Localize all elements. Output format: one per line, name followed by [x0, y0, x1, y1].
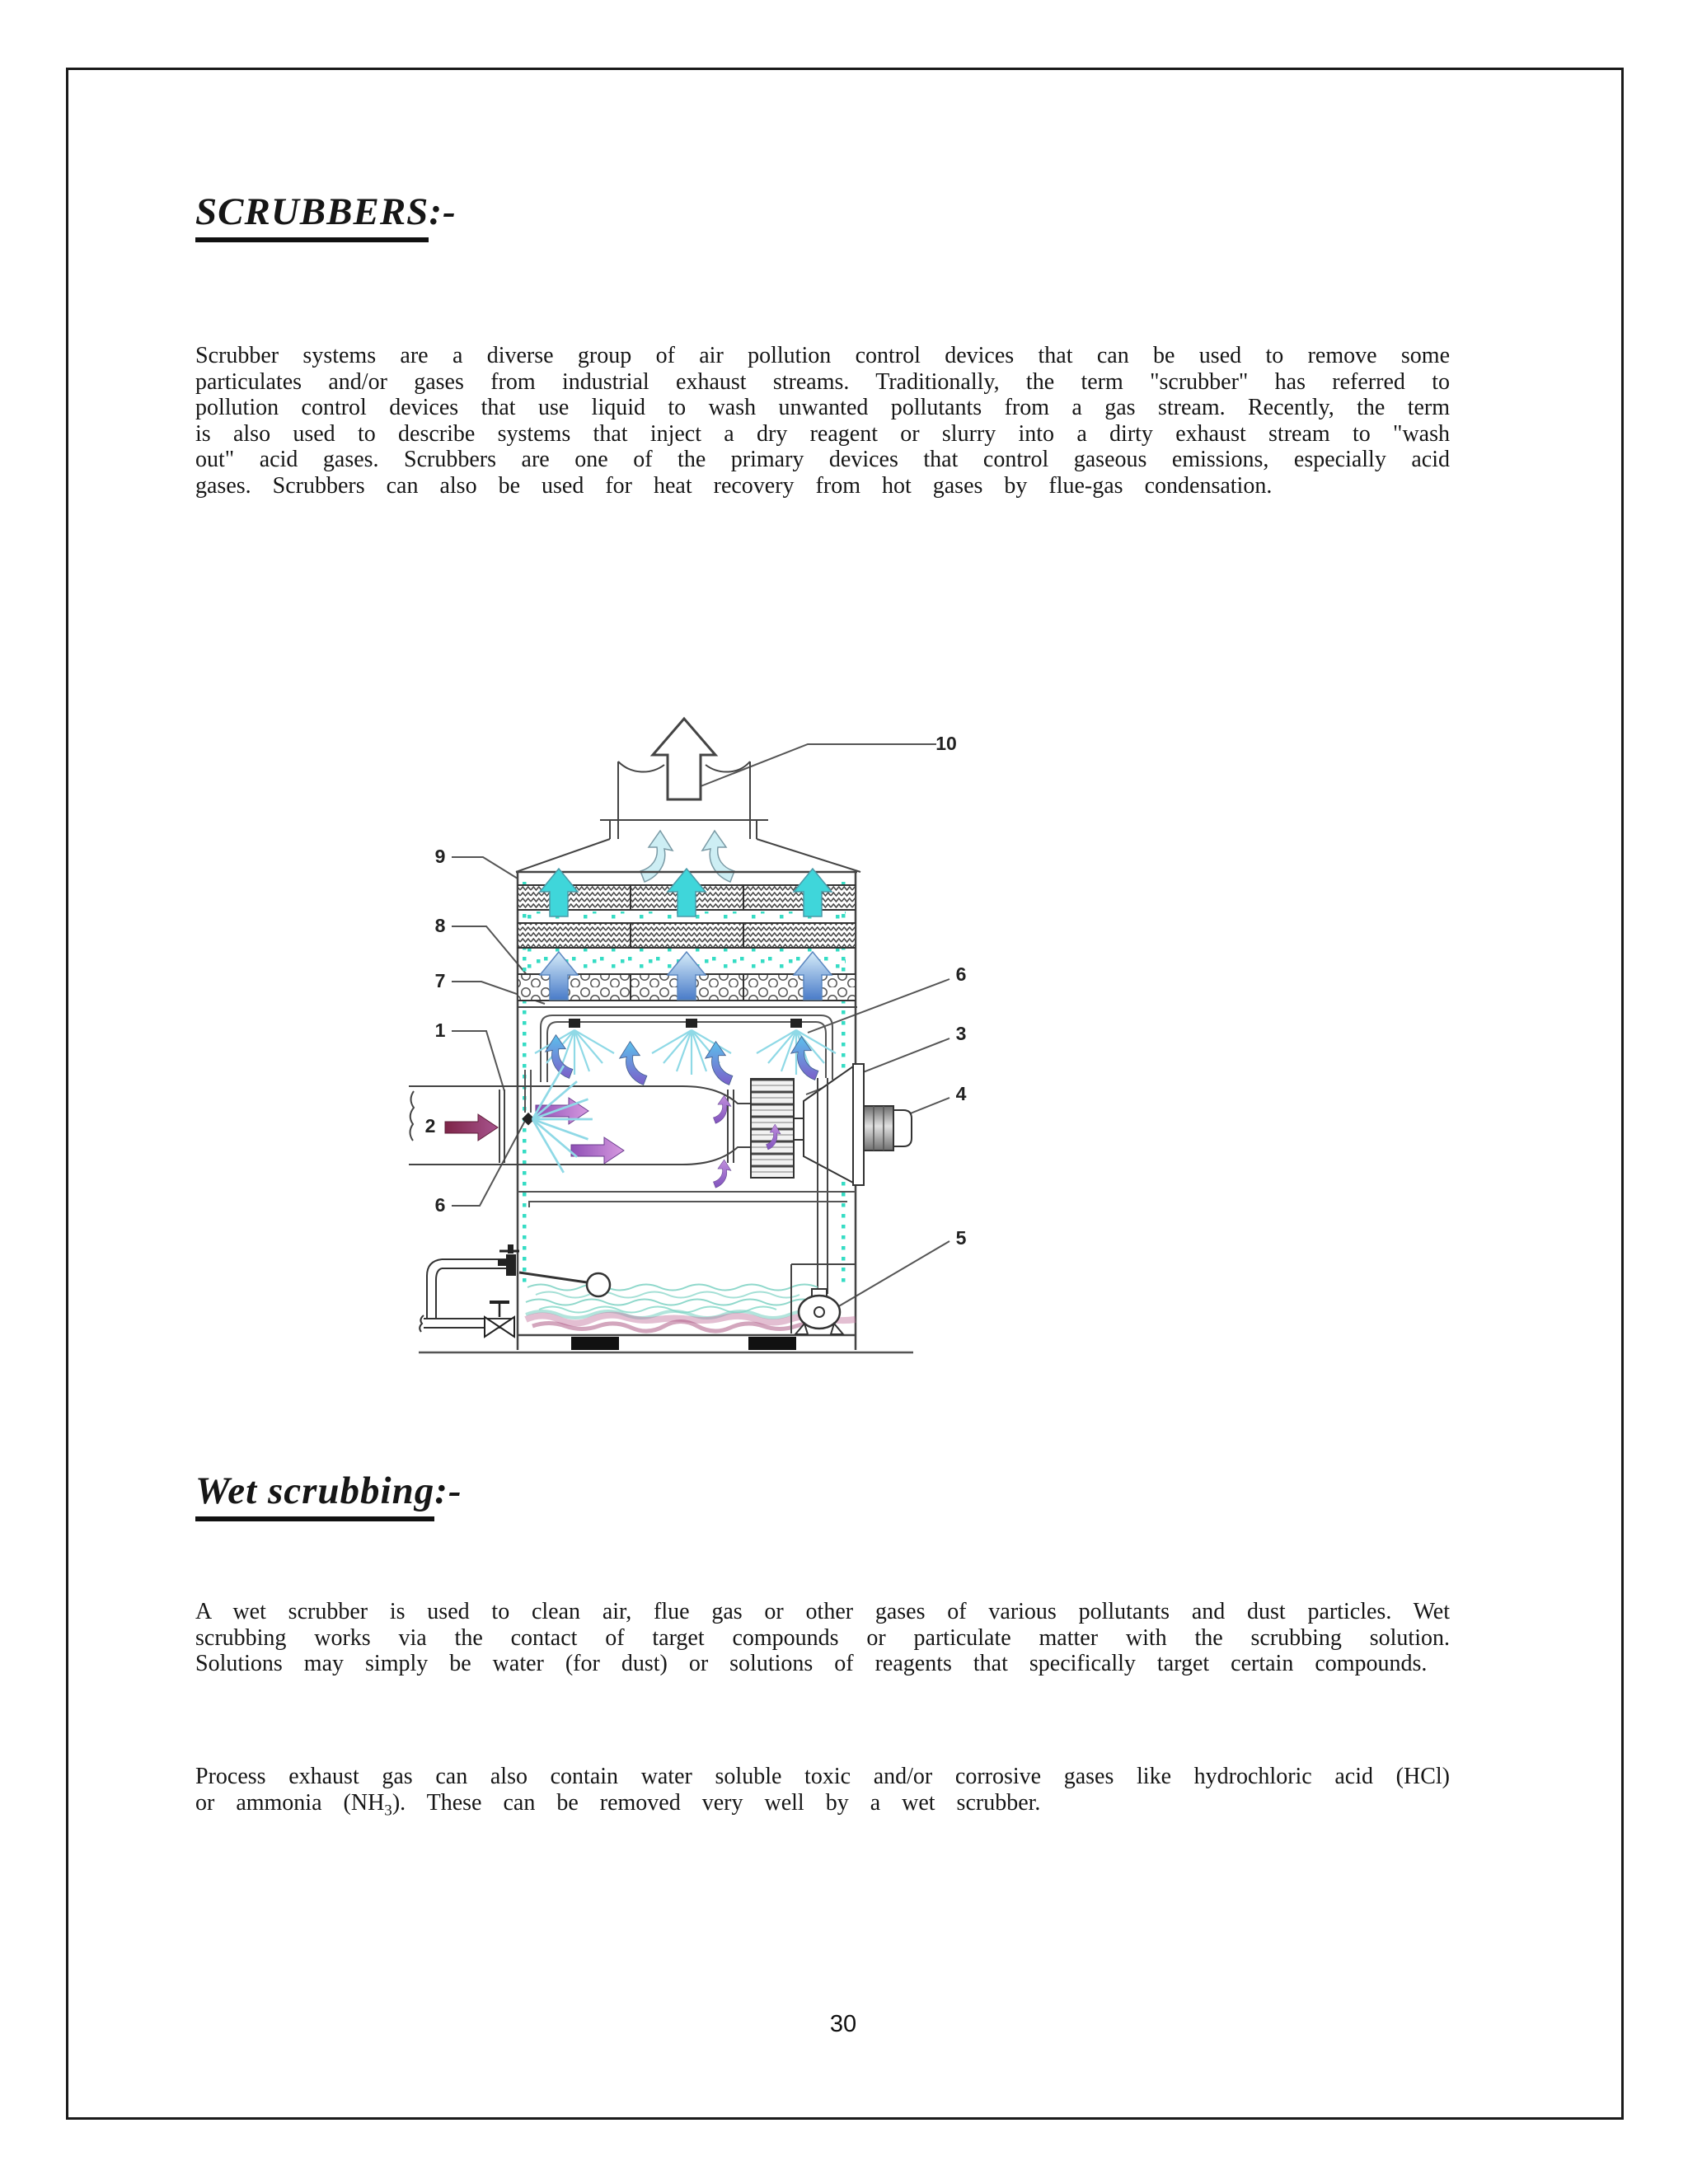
process-gas-text-2: ). These can be removed very well by a w…: [392, 1790, 1041, 1816]
spray-fan-icon: [535, 1030, 836, 1075]
callout-10: 10: [935, 733, 957, 754]
scrubber-diagram-svg: 10 9 8 7 1 2 6 6 3 4 5: [402, 707, 1030, 1360]
float-ball: [587, 1273, 610, 1296]
sump-water: [526, 1285, 823, 1319]
callout-7: 7: [435, 970, 446, 991]
support-foot: [571, 1337, 619, 1350]
callout-6-left: 6: [435, 1194, 446, 1216]
wall-flange: [853, 1064, 864, 1185]
sump-cover: [518, 1192, 856, 1207]
page-title-text: SCRUBBERS: [195, 190, 429, 242]
mist-eliminator-lower: [518, 923, 856, 948]
callout-3: 3: [956, 1023, 967, 1044]
float-valve: [498, 1244, 610, 1296]
callout-9: 9: [435, 846, 446, 867]
page-number: 30: [66, 2011, 1620, 2038]
wet-scrubbing-paragraph: A wet scrubber is used to clean air, flu…: [195, 1599, 1450, 1677]
section-title-text: Wet scrubbing: [195, 1469, 434, 1521]
process-gas-paragraph: Process exhaust gas can also contain wat…: [195, 1764, 1450, 1824]
page-title-suffix: :-: [429, 190, 456, 233]
spray-nozzle: [569, 1019, 802, 1028]
dirty-gas-inlet-arrow-icon: [445, 1114, 498, 1141]
callout-6-right: 6: [956, 963, 967, 985]
clean-gas-outlet-arrow-icon: [653, 719, 715, 799]
page-title: SCRUBBERS:-: [195, 190, 457, 242]
callout-4: 4: [956, 1083, 967, 1104]
callout-1: 1: [435, 1019, 446, 1041]
intro-paragraph: Scrubber systems are a diverse group of …: [195, 343, 1450, 499]
section-title-suffix: :-: [434, 1469, 462, 1512]
makeup-water-piping: [420, 1259, 514, 1332]
scrubber-diagram: 10 9 8 7 1 2 6 6 3 4 5: [402, 707, 1030, 1360]
document-page: { "document": { "title": { "text": "SCRU…: [0, 0, 1688, 2184]
fan-motor: [864, 1106, 912, 1151]
callout-8: 8: [435, 915, 446, 936]
callout-2: 2: [425, 1115, 436, 1137]
callout-5: 5: [956, 1227, 967, 1249]
section-title: Wet scrubbing:-: [195, 1469, 462, 1521]
nh3-subscript: 3: [384, 1802, 392, 1819]
support-foot: [748, 1337, 796, 1350]
duct-flow-arrow-icon: [536, 1098, 624, 1164]
